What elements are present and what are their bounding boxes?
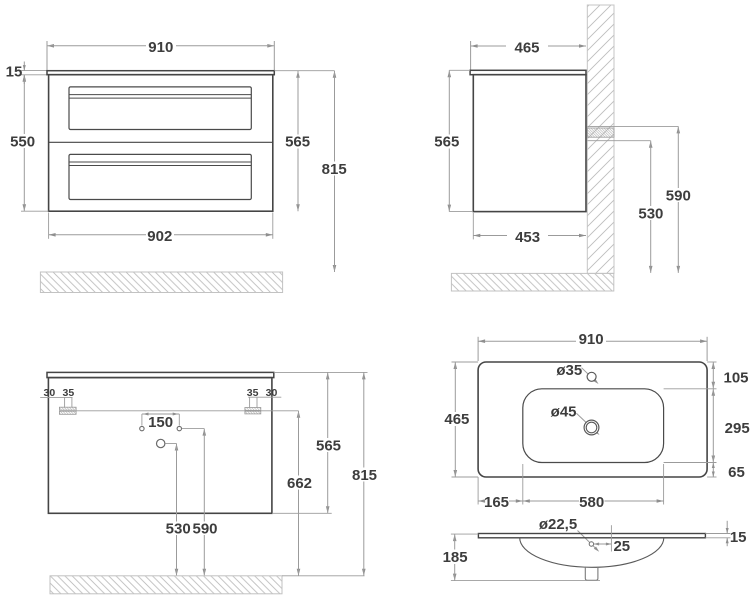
svg-text:902: 902 xyxy=(147,228,172,245)
svg-text:ø35: ø35 xyxy=(556,362,582,379)
svg-text:590: 590 xyxy=(192,520,217,537)
svg-text:ø45: ø45 xyxy=(551,404,577,421)
svg-text:15: 15 xyxy=(6,63,23,80)
svg-text:662: 662 xyxy=(287,475,312,492)
svg-text:ø22,5: ø22,5 xyxy=(539,516,577,533)
svg-text:910: 910 xyxy=(579,331,604,348)
svg-text:465: 465 xyxy=(444,411,469,428)
svg-text:910: 910 xyxy=(148,39,173,56)
svg-text:530: 530 xyxy=(638,206,663,223)
svg-text:465: 465 xyxy=(514,39,539,56)
svg-text:565: 565 xyxy=(285,134,310,151)
svg-text:105: 105 xyxy=(723,369,748,386)
svg-text:15: 15 xyxy=(730,529,747,546)
svg-text:815: 815 xyxy=(322,161,347,178)
svg-text:550: 550 xyxy=(10,133,35,150)
svg-text:65: 65 xyxy=(728,464,745,481)
svg-text:150: 150 xyxy=(148,414,173,431)
svg-text:815: 815 xyxy=(352,467,377,484)
svg-text:25: 25 xyxy=(613,538,630,555)
svg-text:530: 530 xyxy=(166,520,191,537)
svg-text:580: 580 xyxy=(579,494,604,511)
svg-text:565: 565 xyxy=(434,134,459,151)
svg-text:295: 295 xyxy=(725,420,750,437)
svg-text:453: 453 xyxy=(515,229,540,246)
svg-text:590: 590 xyxy=(666,188,691,205)
svg-text:185: 185 xyxy=(443,549,468,566)
svg-text:165: 165 xyxy=(484,494,509,511)
svg-text:565: 565 xyxy=(316,437,341,454)
